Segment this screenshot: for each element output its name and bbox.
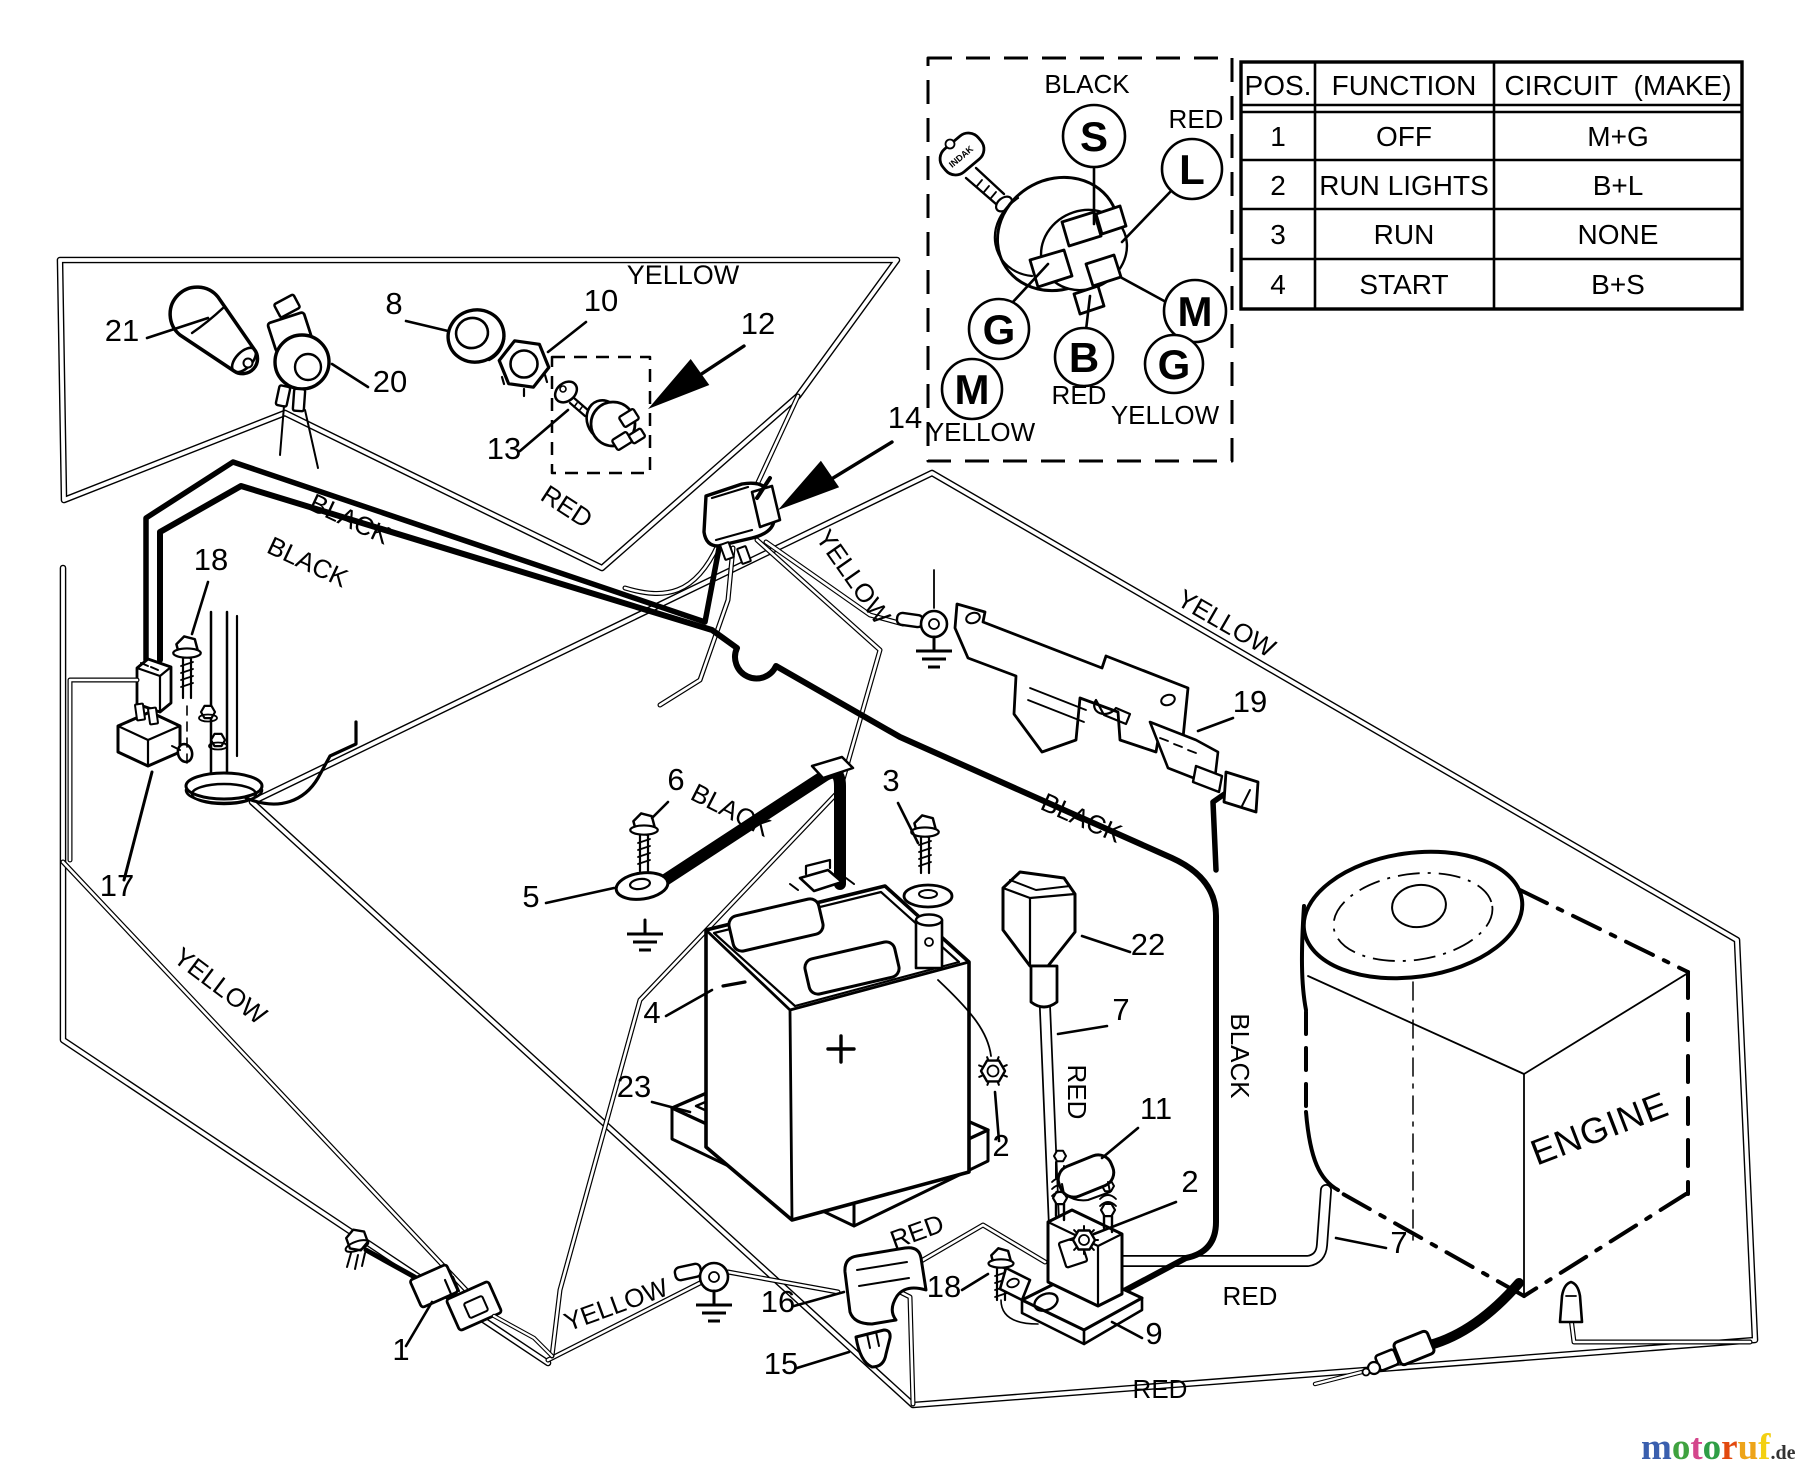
svg-text:L: L bbox=[1179, 146, 1205, 193]
svg-text:23: 23 bbox=[617, 1069, 651, 1104]
svg-text:1: 1 bbox=[392, 1332, 409, 1367]
svg-text:G: G bbox=[983, 306, 1016, 353]
svg-text:14: 14 bbox=[888, 400, 922, 435]
svg-text:RED: RED bbox=[1062, 1065, 1092, 1120]
svg-text:2: 2 bbox=[992, 1128, 1009, 1163]
svg-text:FUNCTION: FUNCTION bbox=[1332, 70, 1477, 101]
svg-text:START: START bbox=[1359, 269, 1448, 300]
svg-text:M: M bbox=[955, 366, 990, 413]
svg-text:B+L: B+L bbox=[1593, 170, 1644, 201]
svg-text:B+S: B+S bbox=[1591, 269, 1645, 300]
svg-text:BLACK: BLACK bbox=[1044, 69, 1130, 99]
svg-text:6: 6 bbox=[667, 762, 684, 797]
svg-text:4: 4 bbox=[643, 995, 660, 1030]
svg-text:18: 18 bbox=[927, 1269, 961, 1304]
svg-text:1: 1 bbox=[1270, 121, 1286, 152]
svg-text:BLACK: BLACK bbox=[1225, 1013, 1255, 1099]
svg-text:M: M bbox=[1178, 288, 1213, 335]
svg-text:YELLOW: YELLOW bbox=[927, 417, 1036, 447]
svg-text:G: G bbox=[1158, 341, 1191, 388]
svg-text:RED: RED bbox=[1169, 104, 1224, 134]
svg-text:NONE: NONE bbox=[1578, 219, 1659, 250]
svg-text:10: 10 bbox=[584, 283, 618, 318]
svg-text:19: 19 bbox=[1233, 684, 1267, 719]
svg-text:3: 3 bbox=[1270, 219, 1286, 250]
svg-text:13: 13 bbox=[487, 431, 521, 466]
svg-text:8: 8 bbox=[385, 286, 402, 321]
svg-text:RUN LIGHTS: RUN LIGHTS bbox=[1319, 170, 1489, 201]
svg-text:RUN: RUN bbox=[1374, 219, 1435, 250]
svg-text:7: 7 bbox=[1390, 1225, 1407, 1260]
svg-text:4: 4 bbox=[1270, 269, 1286, 300]
svg-text:2: 2 bbox=[1270, 170, 1286, 201]
svg-text:11: 11 bbox=[1140, 1091, 1172, 1126]
svg-text:2: 2 bbox=[1181, 1164, 1198, 1199]
svg-text:YELLOW: YELLOW bbox=[627, 260, 740, 290]
svg-text:YELLOW: YELLOW bbox=[1111, 400, 1220, 430]
svg-text:16: 16 bbox=[761, 1284, 795, 1319]
svg-text:9: 9 bbox=[1145, 1316, 1162, 1351]
svg-text:RED: RED bbox=[1223, 1281, 1278, 1311]
svg-text:3: 3 bbox=[882, 763, 899, 798]
svg-text:15: 15 bbox=[764, 1346, 798, 1381]
svg-text:RED: RED bbox=[1052, 380, 1107, 410]
svg-text:18: 18 bbox=[194, 542, 228, 577]
svg-text:B: B bbox=[1069, 334, 1099, 381]
svg-text:7: 7 bbox=[1112, 992, 1129, 1027]
svg-text:21: 21 bbox=[105, 313, 139, 348]
svg-text:RED: RED bbox=[1133, 1374, 1188, 1404]
svg-text:S: S bbox=[1080, 113, 1108, 160]
svg-text:12: 12 bbox=[741, 306, 775, 341]
svg-text:CIRCUIT (MAKE): CIRCUIT (MAKE) bbox=[1504, 70, 1731, 101]
svg-text:OFF: OFF bbox=[1376, 121, 1432, 152]
svg-text:17: 17 bbox=[100, 868, 134, 903]
svg-text:20: 20 bbox=[373, 364, 407, 399]
svg-text:5: 5 bbox=[522, 879, 539, 914]
svg-text:M+G: M+G bbox=[1587, 121, 1648, 152]
svg-text:22: 22 bbox=[1131, 927, 1165, 962]
svg-text:POS.: POS. bbox=[1245, 70, 1312, 101]
